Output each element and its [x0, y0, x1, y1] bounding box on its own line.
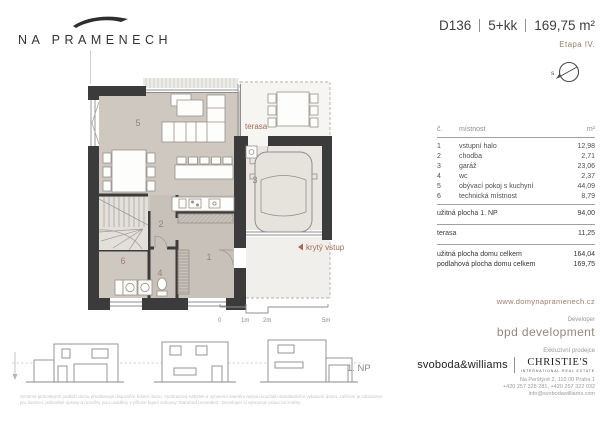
seller-label: Exkluzivní prodejce — [397, 348, 595, 354]
total-row: podlahová plocha domu celkem 169,75 — [437, 259, 595, 269]
row-area: 2,71 — [581, 153, 595, 160]
row-area: 8,79 — [581, 193, 595, 200]
room-label-5: 5 — [135, 118, 140, 128]
room-label-1: 1 — [206, 252, 211, 262]
floor-plan-sheet: NA PRAMENECH D136 5+kk 169,75 m² Etapa I… — [0, 0, 600, 424]
table-row: 5 obývací pokoj s kuchyní 44,09 — [437, 181, 595, 191]
table-header: č. místnost m² — [437, 126, 595, 138]
total-label: užitná plocha domu celkem — [437, 251, 574, 258]
scale-5m: 5m — [322, 318, 330, 324]
disclaimer-line-2: pro ilustraci, jednotlivé úpravy a rozmě… — [20, 400, 392, 406]
table-row: 4 wc 2,37 — [437, 171, 595, 181]
total-value: 164,04 — [574, 251, 595, 258]
subtotal-row: užitná plocha 1. NP 94,00 — [437, 205, 595, 221]
stage-label: Etapa IV. — [559, 40, 595, 49]
row-no: 2 — [437, 153, 459, 160]
elevation-house-3 — [260, 340, 358, 382]
scale-1m: 1m — [241, 318, 249, 324]
unit-area: 169,75 m² — [534, 18, 595, 33]
row-no: 6 — [437, 193, 459, 200]
elevation-house-1 — [26, 344, 124, 382]
subtotal-label: užitná plocha 1. NP — [437, 210, 577, 217]
disclaimer-text: Schéma jednotlivých podlaží domu předsta… — [20, 394, 392, 405]
address-line: Na Perštýně 2, 110 00 Praha 1 — [437, 377, 595, 384]
header-area: m² — [587, 126, 595, 133]
row-area: 44,09 — [577, 183, 595, 190]
scale-0: 0 — [218, 318, 222, 324]
seller-address: Na Perštýně 2, 110 00 Praha 1 +420 257 3… — [437, 377, 595, 398]
floor-level-label: 1. NP — [347, 363, 371, 374]
unit-layout: 5+kk — [488, 18, 517, 33]
total-value: 169,75 — [574, 261, 595, 268]
unit-id: D136 — [439, 18, 471, 33]
covered-entry-label: krytý vstup — [306, 243, 345, 252]
room-label-3: 3 — [252, 175, 257, 185]
terasa-label: terasa — [245, 122, 268, 131]
row-area: 23,06 — [577, 163, 595, 170]
room-label-4: 4 — [157, 268, 162, 278]
row-room: chodba — [459, 153, 581, 160]
row-area: 2,37 — [581, 173, 595, 180]
row-room: wc — [459, 173, 581, 180]
title-separator — [525, 19, 526, 32]
unit-title: D136 5+kk 169,75 m² — [439, 18, 595, 33]
seller-block: Exkluzivní prodejce svoboda&williams CHR… — [397, 348, 595, 373]
row-room: vstupní halo — [459, 143, 577, 150]
total-label: podlahová plocha domu celkem — [437, 261, 574, 268]
table-row: 3 garáž 23,06 — [437, 161, 595, 171]
row-room: garáž — [459, 163, 577, 170]
logo-separator — [514, 357, 515, 373]
room-label-2: 2 — [158, 219, 163, 229]
row-no: 5 — [437, 183, 459, 190]
room-area-table: č. místnost m² 1 vstupní halo 12,98 2 ch… — [437, 126, 595, 269]
elevations-drawing — [12, 336, 390, 394]
header-no: č. — [437, 126, 459, 133]
title-separator — [479, 19, 480, 32]
developer-label: Developer — [437, 317, 595, 323]
table-row: 1 vstupní halo 12,98 — [437, 141, 595, 151]
row-area: 12,98 — [577, 143, 595, 150]
disclaimer-line-1: Schéma jednotlivých podlaží domu předsta… — [20, 394, 392, 400]
terrace-row: terasa 11,25 — [437, 225, 595, 241]
table-row: 6 technická místnost 8,79 — [437, 191, 595, 201]
table-row: 2 chodba 2,71 — [437, 151, 595, 161]
terrace-value: 11,25 — [578, 230, 595, 237]
logo-text: NA PRAMENECH — [18, 33, 172, 47]
header-room: místnost — [459, 126, 587, 133]
row-no: 4 — [437, 173, 459, 180]
room-label-6: 6 — [120, 256, 125, 266]
terrace-label: terasa — [437, 230, 578, 237]
developer-logo: bpd development — [437, 325, 595, 339]
compass-north-label: s — [551, 70, 555, 77]
row-room: technická místnost — [459, 193, 581, 200]
total-row: užitná plocha domu celkem 164,04 — [437, 249, 595, 259]
email-line[interactable]: info@svobodawilliams.com — [437, 391, 595, 398]
staircase — [99, 197, 148, 250]
row-room: obývací pokoj s kuchyní — [459, 183, 577, 190]
logo-wave-icon — [72, 14, 130, 30]
row-no: 1 — [437, 143, 459, 150]
floor-plan-drawing: 5 3 2 1 6 4 terasa krytý vstup — [85, 78, 370, 328]
phones-line: +420 257 328 281, +420 257 322 032 — [437, 384, 595, 391]
subtotal-value: 94,00 — [577, 210, 595, 217]
elevation-house-2 — [154, 342, 236, 382]
scale-bar: 0 1m 2m 5m — [218, 303, 338, 325]
christies-logo: CHRISTIE'S INTERNATIONAL REAL ESTATE — [521, 357, 595, 373]
car-drawing — [250, 152, 317, 232]
developer-block: Developer bpd development — [437, 317, 595, 339]
svoboda-williams-logo: svoboda&williams — [417, 359, 508, 371]
scale-2m: 2m — [263, 318, 271, 324]
compass-icon: s — [545, 58, 587, 86]
website-link[interactable]: www.domynapramenech.cz — [437, 297, 595, 306]
row-no: 3 — [437, 163, 459, 170]
